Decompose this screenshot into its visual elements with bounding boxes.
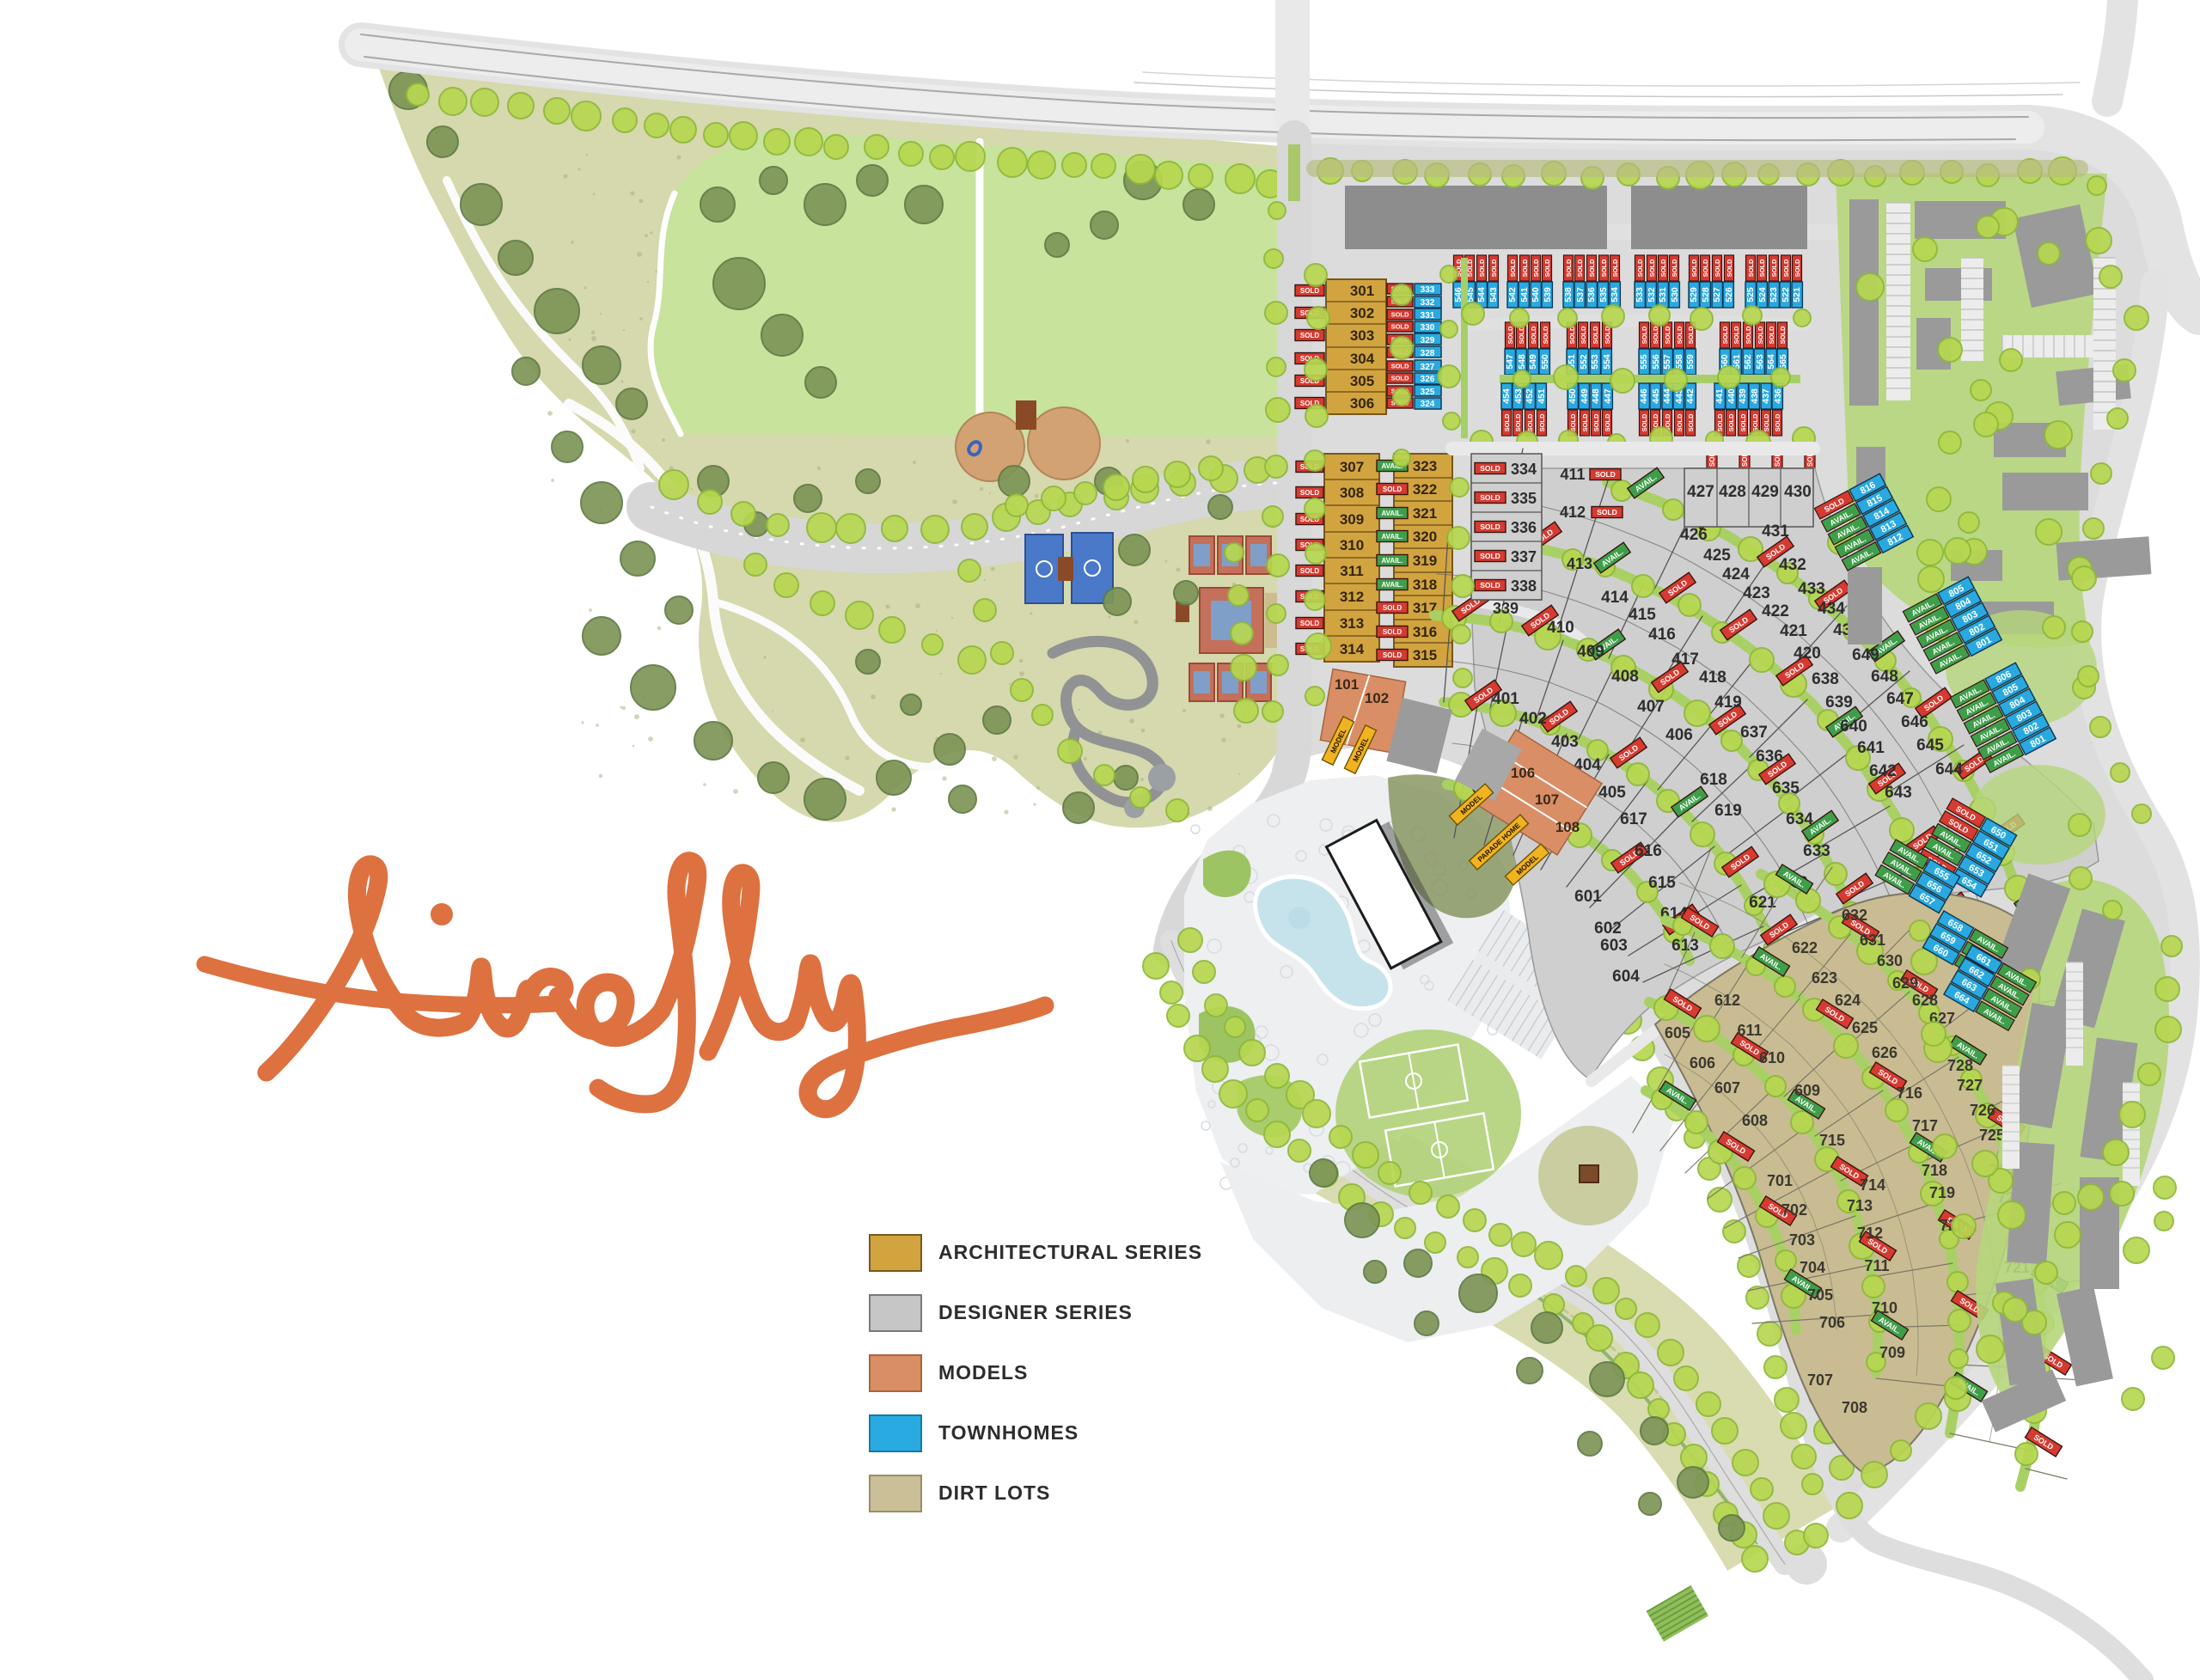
svg-text:SOLD: SOLD (1480, 493, 1500, 502)
svg-text:302: 302 (1350, 305, 1374, 321)
svg-text:428: 428 (1719, 483, 1746, 501)
svg-text:544: 544 (1476, 287, 1487, 302)
svg-text:SOLD: SOLD (1568, 326, 1576, 344)
svg-text:338: 338 (1511, 577, 1537, 595)
svg-text:SOLD: SOLD (1676, 326, 1684, 344)
svg-text:303: 303 (1350, 327, 1374, 344)
svg-text:SOLD: SOLD (1480, 552, 1500, 560)
svg-text:326: 326 (1421, 375, 1435, 384)
svg-text:SOLD: SOLD (1478, 259, 1486, 277)
svg-text:525: 525 (1745, 287, 1756, 302)
svg-text:706: 706 (1819, 1314, 1845, 1331)
svg-text:416: 416 (1648, 626, 1676, 644)
svg-text:SOLD: SOLD (1690, 259, 1698, 277)
svg-text:SOLD: SOLD (1383, 628, 1402, 636)
svg-text:536: 536 (1586, 287, 1597, 302)
svg-text:SOLD: SOLD (1383, 486, 1402, 493)
svg-text:332: 332 (1421, 298, 1435, 308)
svg-text:625: 625 (1852, 1019, 1878, 1036)
svg-text:448: 448 (1591, 388, 1601, 404)
svg-text:SOLD: SOLD (1794, 259, 1801, 277)
svg-text:SOLD: SOLD (1716, 413, 1724, 431)
svg-text:527: 527 (1712, 287, 1722, 302)
svg-text:SOLD: SOLD (1391, 323, 1409, 331)
svg-text:642: 642 (1869, 762, 1897, 780)
svg-text:319: 319 (1413, 553, 1437, 569)
svg-text:523: 523 (1769, 287, 1779, 302)
svg-text:336: 336 (1511, 519, 1537, 536)
svg-text:717: 717 (1912, 1117, 1938, 1134)
svg-text:SOLD: SOLD (1732, 326, 1740, 344)
svg-text:324: 324 (1421, 400, 1435, 409)
svg-text:SOLD: SOLD (1687, 326, 1695, 344)
svg-text:321: 321 (1413, 505, 1437, 522)
svg-text:727: 727 (1957, 1077, 1983, 1094)
svg-text:323: 323 (1413, 458, 1437, 474)
svg-text:310: 310 (1340, 537, 1364, 553)
svg-text:331: 331 (1421, 311, 1435, 321)
svg-text:426: 426 (1680, 526, 1708, 544)
svg-text:SOLD: SOLD (1518, 326, 1525, 344)
svg-text:631: 631 (1860, 932, 1885, 949)
svg-text:711: 711 (1864, 1257, 1889, 1274)
svg-text:SOLD: SOLD (1604, 413, 1611, 431)
svg-text:SOLD: SOLD (1727, 413, 1735, 431)
svg-text:709: 709 (1879, 1344, 1905, 1361)
svg-text:AVAIL.: AVAIL. (1381, 510, 1402, 517)
svg-text:SOLD: SOLD (1391, 311, 1409, 319)
svg-text:554: 554 (1602, 354, 1612, 370)
svg-text:SOLD: SOLD (1300, 489, 1319, 497)
svg-text:628: 628 (1912, 992, 1938, 1009)
svg-text:307: 307 (1340, 459, 1364, 475)
svg-text:619: 619 (1714, 802, 1742, 820)
svg-text:549: 549 (1528, 354, 1538, 370)
svg-text:SOLD: SOLD (1576, 259, 1584, 277)
svg-text:309: 309 (1340, 511, 1364, 528)
svg-text:702: 702 (1781, 1201, 1807, 1219)
svg-text:SOLD: SOLD (1514, 413, 1522, 431)
svg-text:SOLD: SOLD (1592, 413, 1600, 431)
svg-text:SOLD: SOLD (1300, 287, 1319, 295)
svg-text:SOLD: SOLD (1779, 326, 1787, 344)
svg-text:452: 452 (1525, 388, 1535, 404)
svg-text:SOLD: SOLD (1782, 259, 1790, 277)
svg-text:440: 440 (1726, 388, 1737, 404)
svg-text:564: 564 (1766, 354, 1776, 370)
svg-text:602: 602 (1594, 919, 1622, 938)
svg-text:SOLD: SOLD (1652, 326, 1659, 344)
svg-text:420: 420 (1794, 645, 1821, 663)
svg-text:613: 613 (1671, 937, 1699, 955)
svg-text:306: 306 (1350, 395, 1374, 412)
svg-text:SOLD: SOLD (1503, 413, 1511, 431)
svg-text:532: 532 (1647, 287, 1657, 302)
svg-text:430: 430 (1784, 483, 1812, 501)
svg-text:325: 325 (1421, 388, 1435, 397)
svg-text:AVAIL.: AVAIL. (1381, 533, 1402, 541)
svg-text:411: 411 (1560, 466, 1585, 483)
svg-text:442: 442 (1685, 388, 1696, 404)
svg-text:726: 726 (1970, 1102, 1995, 1119)
svg-text:SOLD: SOLD (1588, 259, 1596, 277)
svg-text:713: 713 (1847, 1197, 1873, 1214)
svg-text:563: 563 (1755, 354, 1765, 370)
svg-text:AVAIL.: AVAIL. (1381, 557, 1402, 565)
svg-text:414: 414 (1601, 589, 1629, 607)
svg-text:SOLD: SOLD (1595, 470, 1616, 479)
svg-text:SOLD: SOLD (1391, 363, 1409, 370)
svg-text:438: 438 (1750, 388, 1760, 404)
svg-text:SOLD: SOLD (1671, 259, 1678, 277)
svg-text:632: 632 (1842, 907, 1867, 924)
svg-text:SOLD: SOLD (1543, 259, 1551, 277)
svg-text:543: 543 (1488, 287, 1499, 302)
svg-text:449: 449 (1580, 388, 1590, 404)
svg-text:SOLD: SOLD (1747, 259, 1755, 277)
svg-text:316: 316 (1413, 624, 1437, 640)
svg-text:612: 612 (1714, 992, 1740, 1009)
svg-text:634: 634 (1786, 810, 1813, 828)
svg-text:606: 606 (1690, 1054, 1715, 1072)
svg-text:441: 441 (1714, 388, 1725, 404)
svg-text:454: 454 (1501, 388, 1512, 404)
svg-text:552: 552 (1579, 354, 1589, 370)
svg-text:SOLD: SOLD (1702, 259, 1709, 277)
svg-text:633: 633 (1803, 842, 1830, 860)
svg-text:703: 703 (1789, 1231, 1815, 1249)
svg-text:639: 639 (1825, 693, 1853, 712)
svg-text:403: 403 (1551, 733, 1579, 751)
svg-text:434: 434 (1818, 600, 1845, 618)
svg-text:605: 605 (1665, 1024, 1690, 1042)
svg-text:556: 556 (1651, 354, 1661, 370)
svg-text:DIRT LOTS: DIRT LOTS (938, 1481, 1050, 1504)
svg-text:SOLD: SOLD (1641, 413, 1648, 431)
svg-text:108: 108 (1555, 819, 1580, 835)
svg-text:716: 716 (1897, 1084, 1922, 1102)
svg-text:446: 446 (1639, 388, 1649, 404)
svg-text:401: 401 (1492, 690, 1519, 708)
svg-text:329: 329 (1421, 336, 1435, 345)
svg-text:SOLD: SOLD (1600, 259, 1608, 277)
svg-text:635: 635 (1772, 779, 1800, 797)
svg-text:322: 322 (1413, 481, 1437, 498)
svg-text:526: 526 (1724, 287, 1734, 302)
svg-text:ARCHITECTURAL SERIES: ARCHITECTURAL SERIES (938, 1241, 1202, 1263)
svg-text:327: 327 (1421, 363, 1435, 372)
svg-text:SOLD: SOLD (1569, 413, 1577, 431)
svg-text:626: 626 (1872, 1044, 1897, 1061)
svg-text:313: 313 (1340, 615, 1364, 632)
svg-text:SOLD: SOLD (1770, 259, 1778, 277)
svg-text:562: 562 (1743, 354, 1753, 370)
svg-text:334: 334 (1511, 461, 1537, 478)
svg-text:601: 601 (1574, 888, 1602, 906)
svg-text:714: 714 (1860, 1176, 1885, 1194)
svg-text:453: 453 (1513, 388, 1524, 404)
svg-text:SOLD: SOLD (1530, 326, 1537, 344)
svg-text:410: 410 (1547, 619, 1574, 637)
svg-text:SOLD: SOLD (1676, 413, 1684, 431)
svg-text:451: 451 (1537, 388, 1547, 404)
svg-text:647: 647 (1886, 690, 1914, 708)
svg-text:644: 644 (1935, 761, 1963, 779)
svg-text:705: 705 (1807, 1286, 1833, 1304)
svg-text:SOLD: SOLD (1714, 259, 1721, 277)
svg-text:106: 106 (1511, 765, 1535, 781)
svg-text:SOLD: SOLD (1758, 259, 1766, 277)
svg-text:SOLD: SOLD (1611, 259, 1619, 277)
svg-text:422: 422 (1762, 602, 1789, 620)
svg-text:SOLD: SOLD (1506, 326, 1514, 344)
svg-text:616: 616 (1635, 842, 1662, 860)
svg-text:450: 450 (1567, 388, 1578, 404)
svg-text:433: 433 (1798, 580, 1825, 598)
svg-text:328: 328 (1421, 349, 1435, 358)
svg-text:102: 102 (1365, 690, 1389, 706)
svg-text:SOLD: SOLD (1604, 326, 1611, 344)
svg-text:SOLD: SOLD (1526, 413, 1534, 431)
svg-text:550: 550 (1540, 354, 1550, 370)
svg-text:559: 559 (1685, 354, 1696, 370)
svg-text:538: 538 (1563, 287, 1574, 302)
svg-text:437: 437 (1761, 388, 1771, 404)
svg-text:101: 101 (1335, 676, 1359, 693)
svg-text:SOLD: SOLD (1751, 413, 1759, 431)
svg-text:SOLD: SOLD (1581, 413, 1589, 431)
svg-text:SOLD: SOLD (1664, 326, 1671, 344)
svg-text:704: 704 (1800, 1259, 1825, 1276)
svg-text:607: 607 (1714, 1079, 1740, 1097)
svg-text:624: 624 (1835, 992, 1861, 1009)
svg-text:SOLD: SOLD (1648, 259, 1656, 277)
svg-text:305: 305 (1350, 373, 1374, 389)
svg-text:427: 427 (1687, 483, 1714, 501)
svg-text:701: 701 (1767, 1172, 1793, 1189)
svg-text:SOLD: SOLD (1300, 567, 1319, 575)
svg-text:SOLD: SOLD (1721, 326, 1729, 344)
svg-text:429: 429 (1751, 483, 1779, 501)
svg-text:SOLD: SOLD (1739, 413, 1747, 431)
svg-text:418: 418 (1699, 669, 1726, 687)
svg-text:640: 640 (1840, 718, 1867, 736)
svg-text:431: 431 (1762, 522, 1789, 541)
svg-text:649: 649 (1852, 646, 1879, 664)
svg-text:SOLD: SOLD (1687, 413, 1695, 431)
svg-text:335: 335 (1511, 490, 1537, 507)
svg-text:715: 715 (1819, 1132, 1845, 1149)
svg-text:636: 636 (1756, 748, 1783, 766)
svg-text:SOLD: SOLD (1538, 413, 1546, 431)
svg-text:424: 424 (1722, 565, 1750, 583)
svg-text:311: 311 (1340, 563, 1363, 579)
svg-text:608: 608 (1742, 1112, 1768, 1129)
svg-text:710: 710 (1872, 1299, 1897, 1317)
svg-text:MODELS: MODELS (938, 1361, 1028, 1384)
svg-text:719: 719 (1929, 1184, 1955, 1201)
svg-text:541: 541 (1519, 287, 1530, 302)
svg-text:408: 408 (1611, 668, 1639, 686)
svg-text:439: 439 (1738, 388, 1748, 404)
svg-text:318: 318 (1413, 577, 1437, 593)
svg-text:SOLD: SOLD (1391, 375, 1409, 382)
svg-text:TOWNHOMES: TOWNHOMES (938, 1421, 1079, 1444)
svg-text:SOLD: SOLD (1300, 332, 1319, 339)
svg-text:SOLD: SOLD (1490, 259, 1498, 277)
svg-text:423: 423 (1743, 584, 1770, 602)
svg-text:630: 630 (1877, 952, 1903, 969)
svg-text:SOLD: SOLD (1592, 326, 1599, 344)
svg-text:SOLD: SOLD (1768, 326, 1775, 344)
svg-text:SOLD: SOLD (1757, 326, 1764, 344)
svg-text:315: 315 (1413, 647, 1437, 663)
svg-text:641: 641 (1857, 739, 1885, 757)
svg-text:SOLD: SOLD (1659, 259, 1667, 277)
svg-text:333: 333 (1421, 285, 1435, 295)
svg-text:SOLD: SOLD (1480, 522, 1500, 531)
svg-text:533: 533 (1635, 287, 1645, 302)
svg-text:609: 609 (1794, 1082, 1820, 1099)
svg-text:604: 604 (1612, 968, 1640, 986)
svg-text:557: 557 (1662, 354, 1672, 370)
svg-text:SOLD: SOLD (1383, 604, 1402, 612)
svg-text:529: 529 (1689, 287, 1699, 302)
svg-text:603: 603 (1600, 937, 1628, 955)
svg-text:555: 555 (1639, 354, 1649, 370)
svg-text:330: 330 (1421, 323, 1435, 333)
svg-text:301: 301 (1350, 283, 1374, 299)
svg-text:629: 629 (1892, 974, 1918, 992)
svg-text:528: 528 (1701, 287, 1711, 302)
svg-text:521: 521 (1792, 287, 1802, 302)
svg-text:337: 337 (1511, 548, 1537, 565)
svg-text:436: 436 (1773, 388, 1783, 404)
svg-text:AVAIL.: AVAIL. (1381, 581, 1402, 589)
svg-text:SOLD: SOLD (1774, 413, 1781, 431)
svg-text:548: 548 (1517, 354, 1527, 370)
svg-text:406: 406 (1665, 726, 1693, 744)
svg-text:SOLD: SOLD (1597, 508, 1617, 516)
svg-text:312: 312 (1340, 589, 1364, 605)
svg-text:SOLD: SOLD (1532, 259, 1540, 277)
svg-text:707: 707 (1807, 1371, 1833, 1389)
svg-text:SOLD: SOLD (1521, 259, 1529, 277)
svg-text:540: 540 (1531, 287, 1541, 302)
svg-text:547: 547 (1505, 354, 1515, 370)
svg-text:558: 558 (1674, 354, 1684, 370)
svg-text:339: 339 (1493, 600, 1519, 617)
svg-text:SOLD: SOLD (1580, 326, 1587, 344)
svg-text:SOLD: SOLD (1383, 651, 1402, 659)
svg-text:615: 615 (1648, 874, 1676, 892)
svg-text:SOLD: SOLD (1726, 259, 1733, 277)
svg-text:SOLD: SOLD (1641, 326, 1648, 344)
svg-text:314: 314 (1340, 641, 1365, 657)
svg-text:623: 623 (1812, 969, 1837, 987)
svg-text:SOLD: SOLD (1542, 326, 1549, 344)
svg-text:320: 320 (1413, 528, 1437, 545)
svg-text:611: 611 (1737, 1022, 1762, 1039)
svg-text:SOLD: SOLD (1565, 259, 1573, 277)
svg-text:407: 407 (1637, 698, 1665, 716)
svg-text:718: 718 (1922, 1162, 1947, 1179)
svg-text:539: 539 (1543, 287, 1553, 302)
svg-text:421: 421 (1780, 622, 1807, 640)
svg-text:553: 553 (1590, 354, 1600, 370)
svg-text:425: 425 (1703, 547, 1731, 565)
svg-text:402: 402 (1519, 710, 1547, 728)
svg-text:413: 413 (1567, 555, 1592, 572)
svg-text:537: 537 (1575, 287, 1586, 302)
svg-text:534: 534 (1610, 287, 1620, 302)
svg-text:648: 648 (1871, 668, 1898, 686)
svg-text:530: 530 (1670, 287, 1680, 302)
svg-text:308: 308 (1340, 485, 1364, 501)
svg-text:432: 432 (1779, 556, 1806, 574)
svg-text:542: 542 (1507, 287, 1518, 302)
svg-text:107: 107 (1535, 791, 1559, 808)
svg-text:618: 618 (1700, 771, 1727, 789)
svg-text:SOLD: SOLD (1509, 259, 1517, 277)
svg-text:409: 409 (1577, 643, 1604, 661)
svg-text:531: 531 (1658, 287, 1668, 302)
svg-text:622: 622 (1792, 939, 1818, 956)
svg-text:522: 522 (1781, 287, 1791, 302)
svg-text:419: 419 (1714, 693, 1742, 712)
svg-text:447: 447 (1603, 388, 1613, 404)
svg-text:646: 646 (1901, 713, 1928, 731)
svg-text:SOLD: SOLD (1480, 464, 1500, 473)
svg-text:712: 712 (1857, 1225, 1883, 1242)
svg-text:637: 637 (1740, 724, 1768, 742)
svg-text:535: 535 (1598, 287, 1609, 302)
svg-text:417: 417 (1671, 651, 1699, 669)
svg-text:524: 524 (1757, 287, 1768, 302)
svg-text:708: 708 (1842, 1399, 1867, 1416)
svg-text:645: 645 (1916, 736, 1944, 754)
svg-text:DESIGNER SERIES: DESIGNER SERIES (938, 1301, 1133, 1323)
svg-text:415: 415 (1629, 606, 1656, 624)
svg-text:SOLD: SOLD (1636, 259, 1644, 277)
svg-text:405: 405 (1598, 784, 1626, 802)
svg-text:638: 638 (1812, 670, 1839, 688)
svg-text:SOLD: SOLD (1745, 326, 1752, 344)
svg-text:304: 304 (1350, 351, 1375, 367)
svg-text:SOLD: SOLD (1763, 413, 1770, 431)
svg-text:SOLD: SOLD (1480, 581, 1500, 590)
svg-text:643: 643 (1885, 784, 1912, 802)
svg-text:412: 412 (1560, 504, 1586, 521)
svg-text:SOLD: SOLD (1300, 620, 1319, 627)
svg-text:445: 445 (1651, 388, 1661, 404)
svg-text:610: 610 (1759, 1049, 1785, 1066)
svg-text:617: 617 (1620, 810, 1647, 828)
svg-text:728: 728 (1947, 1057, 1973, 1074)
